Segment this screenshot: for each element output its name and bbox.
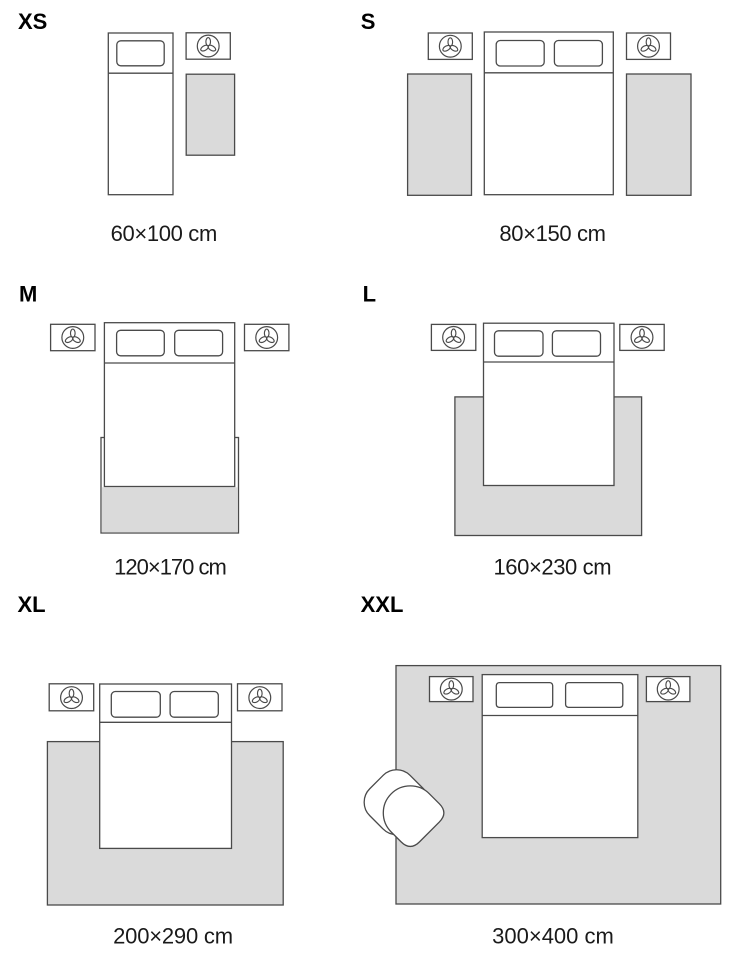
svg-text:160×230 cm: 160×230 cm [493,555,611,580]
svg-text:XS: XS [18,9,47,34]
svg-text:80×150 cm: 80×150 cm [499,221,605,246]
svg-text:200×290 cm: 200×290 cm [113,924,233,949]
svg-text:L: L [363,282,376,307]
svg-text:M: M [19,282,37,307]
svg-text:60×100 cm: 60×100 cm [111,221,217,246]
svg-text:XXL: XXL [361,592,404,617]
svg-text:XL: XL [18,592,46,617]
svg-text:S: S [361,9,376,34]
svg-text:120×170 cm: 120×170 cm [114,555,226,580]
svg-text:300×400 cm: 300×400 cm [492,924,614,949]
